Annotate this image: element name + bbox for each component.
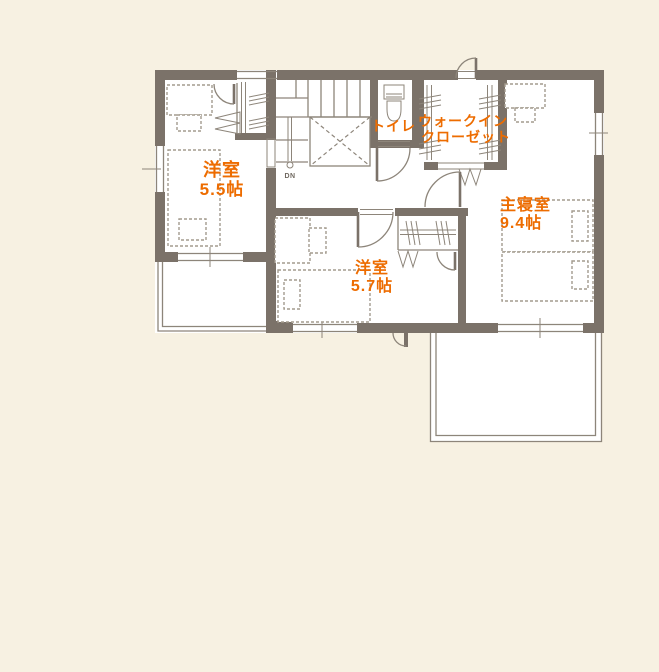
room-label-western-5-5-name: 洋室 (203, 159, 241, 180)
room-label-master-size: 9.4帖 (500, 213, 542, 232)
dn-label: DN (284, 173, 295, 180)
room-label-wic-line1: ウォークイン (418, 113, 508, 129)
room-label-wic-line2: クローゼット (421, 129, 511, 145)
room-label-western-5-5-size: 5.5帖 (200, 179, 245, 199)
chair (309, 228, 326, 253)
balcony-right-floor (430, 333, 602, 442)
room-label-western-5-7-name: 洋室 (355, 258, 389, 277)
pillow (572, 211, 588, 241)
pillow (284, 280, 300, 309)
floor-plan-svg: DN (0, 0, 659, 672)
desk (275, 218, 310, 263)
desk (167, 85, 212, 115)
desk (505, 84, 545, 108)
chair (177, 115, 201, 131)
pillow (572, 261, 588, 289)
balcony-left-floor (157, 262, 276, 332)
room-label-toilet: トイレ (371, 118, 416, 134)
chair (515, 108, 535, 122)
room-label-master-name: 主寝室 (500, 195, 551, 214)
room-label-western-5-7-size: 5.7帖 (351, 276, 393, 295)
pillow (179, 219, 206, 240)
